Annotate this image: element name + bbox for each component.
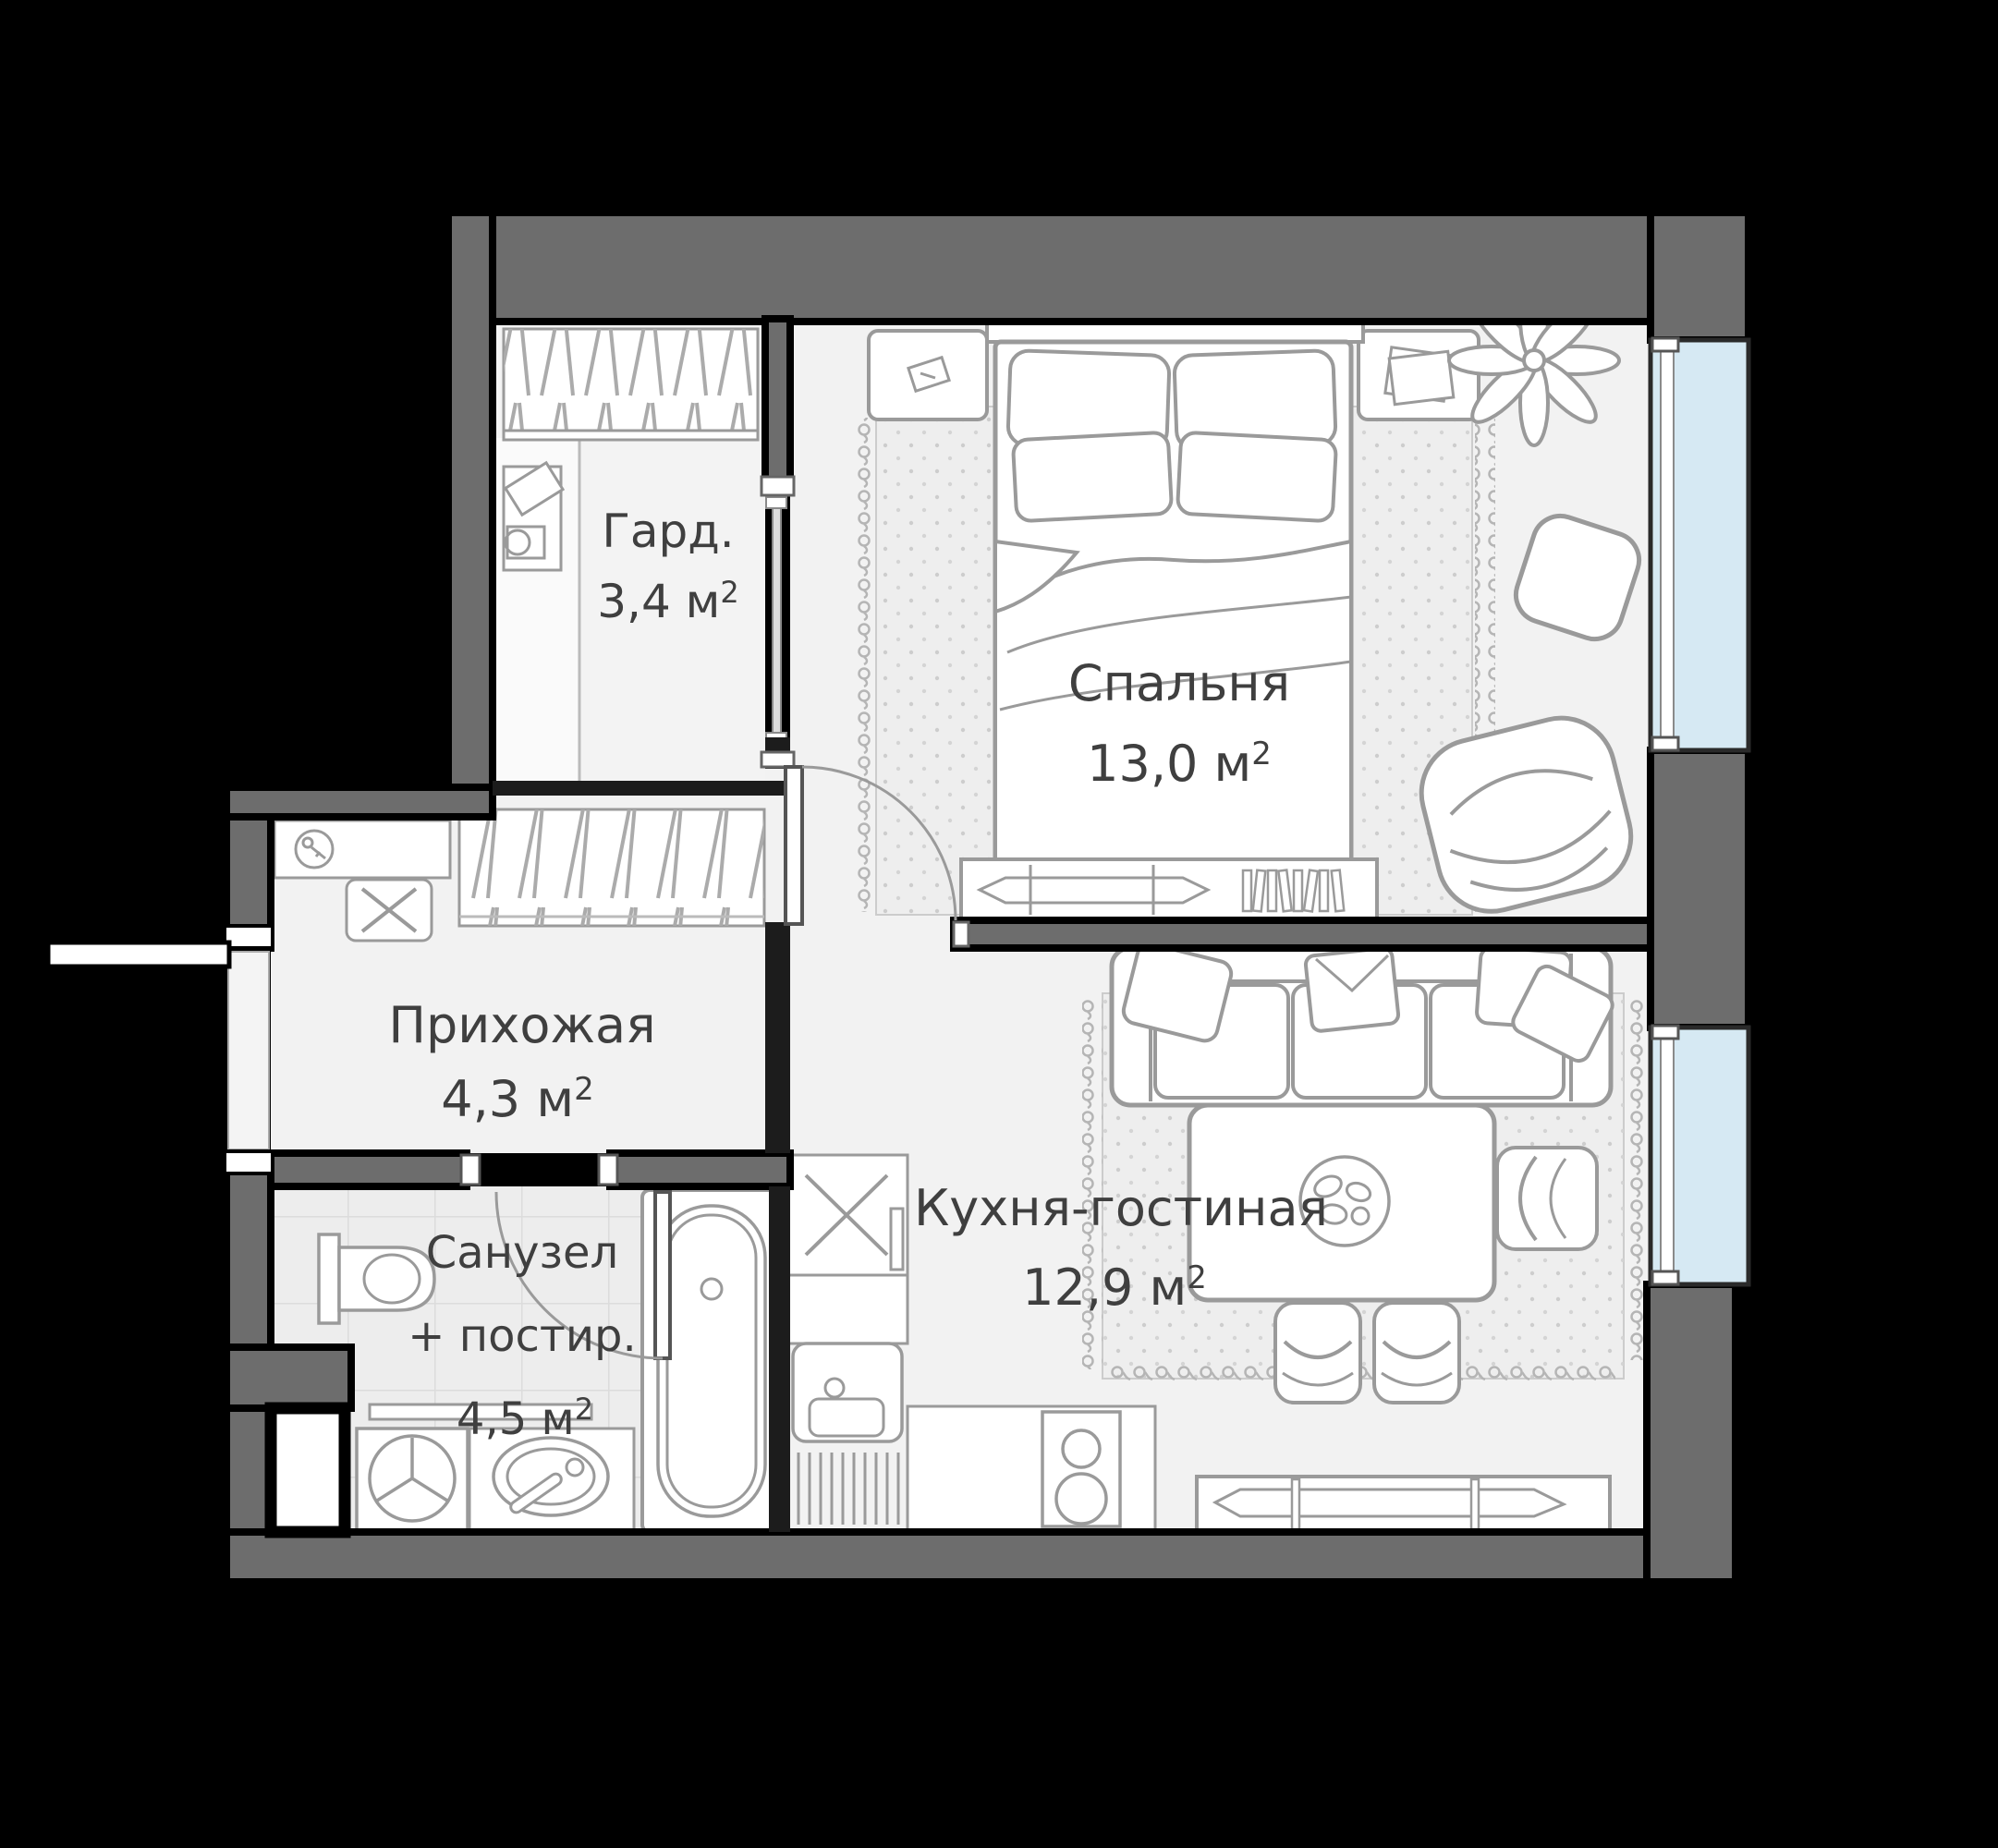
wall-step [226, 787, 493, 817]
chair [1275, 1303, 1360, 1403]
wall-right-pier [1651, 750, 1748, 1027]
wardrobe-sliding-door [766, 497, 786, 746]
hallway-rail [459, 809, 764, 926]
headboard [987, 323, 1363, 342]
stove-two-burners [1042, 1412, 1120, 1526]
kitchen-counter [908, 1406, 1155, 1532]
sofa-pillow [1305, 947, 1399, 1031]
washing-machine [357, 1429, 468, 1530]
bathroom-door-leaf [655, 1192, 670, 1358]
tv-icon [980, 878, 1208, 903]
wardrobe-area: 3,4 м2 [597, 575, 739, 628]
hallway-label: Прихожая [388, 996, 655, 1054]
wardrobe-label: Гард. [602, 505, 734, 558]
bedroom-door-leaf [786, 767, 802, 924]
bathroom-label-line2: + постир. [408, 1310, 637, 1362]
bathroom-area: 4,5 м2 [457, 1392, 593, 1445]
entrance-door [48, 926, 273, 1173]
bedroom-label: Спальня [1068, 654, 1290, 712]
fridge-cabinet [786, 1275, 908, 1343]
desk [504, 463, 563, 570]
blanket [995, 541, 1351, 910]
pillow [1013, 432, 1172, 522]
wall-left-lower [226, 1153, 271, 1347]
vent-shaft [271, 1408, 345, 1532]
floorplan-svg: Гард. 3,4 м2 Спальня 13,0 м2 Прихожая 4,… [0, 0, 1998, 1848]
wall-bath-kitchen [769, 1186, 790, 1532]
kitchen-label: Кухня-гостиная [914, 1179, 1328, 1237]
hallway-furniture [274, 809, 764, 941]
key-shelf [274, 821, 450, 878]
window-bedroom [1651, 338, 1748, 750]
wall-left-upper [448, 213, 493, 787]
sofa [1112, 942, 1616, 1105]
chair [1374, 1303, 1459, 1403]
books-row [1243, 870, 1344, 912]
wall-bath-left-stub [271, 1153, 467, 1186]
wall-separator-upper [765, 319, 790, 480]
wall-tv [954, 920, 1651, 948]
wardrobe-rail-top [504, 329, 758, 440]
chair [1497, 1148, 1597, 1249]
window-living [1651, 1026, 1748, 1284]
wall-bath-right-stub [610, 1153, 790, 1186]
wall-wardrobe-hallway [493, 781, 790, 796]
double-bed [987, 323, 1363, 910]
kitchen-sink [793, 1343, 902, 1441]
pillow [1177, 432, 1336, 522]
bathroom-label-line1: Санузел [426, 1227, 618, 1279]
tv-console [961, 859, 1377, 920]
entrance-door-leaf [48, 942, 229, 967]
wall-right-lower [1647, 1284, 1736, 1582]
wall-right-upper [1651, 213, 1748, 340]
wall-bump [226, 1347, 351, 1408]
sideboard [1197, 1477, 1610, 1532]
wall-top [448, 213, 1748, 322]
nightstand-right [1358, 331, 1479, 419]
wall-separator-lower [765, 922, 790, 1153]
wall-bottom [226, 1532, 1736, 1582]
kitchen-area: 12,9 м2 [1022, 1258, 1207, 1317]
nightstand-left [869, 331, 987, 419]
hallway-cabinet-x [347, 880, 432, 941]
bedroom-area: 13,0 м2 [1087, 735, 1272, 793]
floorplan-stage: Гард. 3,4 м2 Спальня 13,0 м2 Прихожая 4,… [0, 0, 1998, 1848]
hallway-area: 4,3 м2 [441, 1070, 593, 1128]
